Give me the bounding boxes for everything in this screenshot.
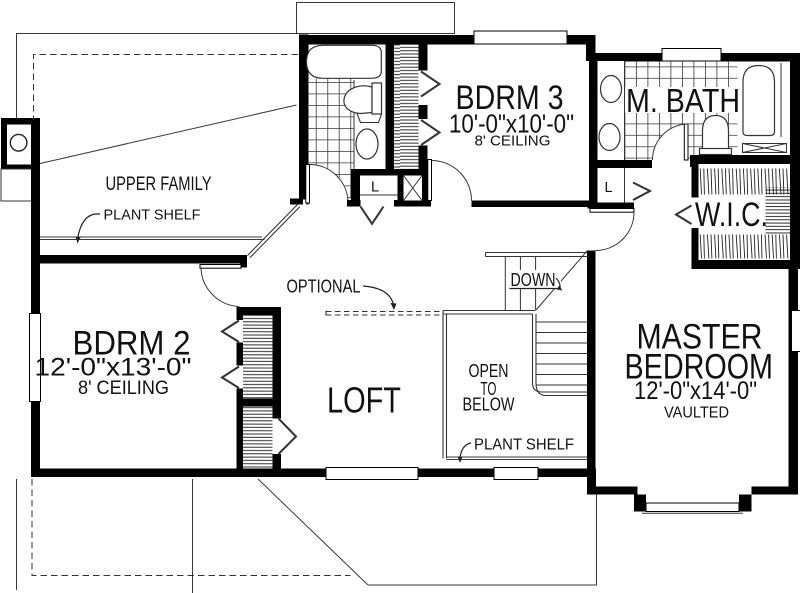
svg-text:L: L — [371, 179, 379, 196]
svg-text:M. BATH: M. BATH — [626, 82, 740, 119]
svg-text:L: L — [605, 179, 613, 196]
svg-text:UPPER FAMILY: UPPER FAMILY — [106, 174, 212, 195]
svg-text:8' CEILING: 8' CEILING — [475, 134, 551, 150]
svg-text:12'-0"x14'-0": 12'-0"x14'-0" — [634, 377, 757, 405]
svg-text:8' CEILING: 8' CEILING — [78, 378, 169, 399]
svg-text:LOFT: LOFT — [327, 380, 401, 421]
svg-text:DOWN: DOWN — [511, 270, 556, 290]
svg-text:BELOW: BELOW — [463, 394, 515, 415]
svg-text:VAULTED: VAULTED — [664, 405, 729, 422]
svg-text:OPTIONAL: OPTIONAL — [287, 276, 361, 297]
svg-text:PLANT SHELF: PLANT SHELF — [104, 207, 201, 224]
svg-text:W.I.C.: W.I.C. — [695, 196, 768, 234]
svg-text:PLANT SHELF: PLANT SHELF — [474, 437, 574, 454]
